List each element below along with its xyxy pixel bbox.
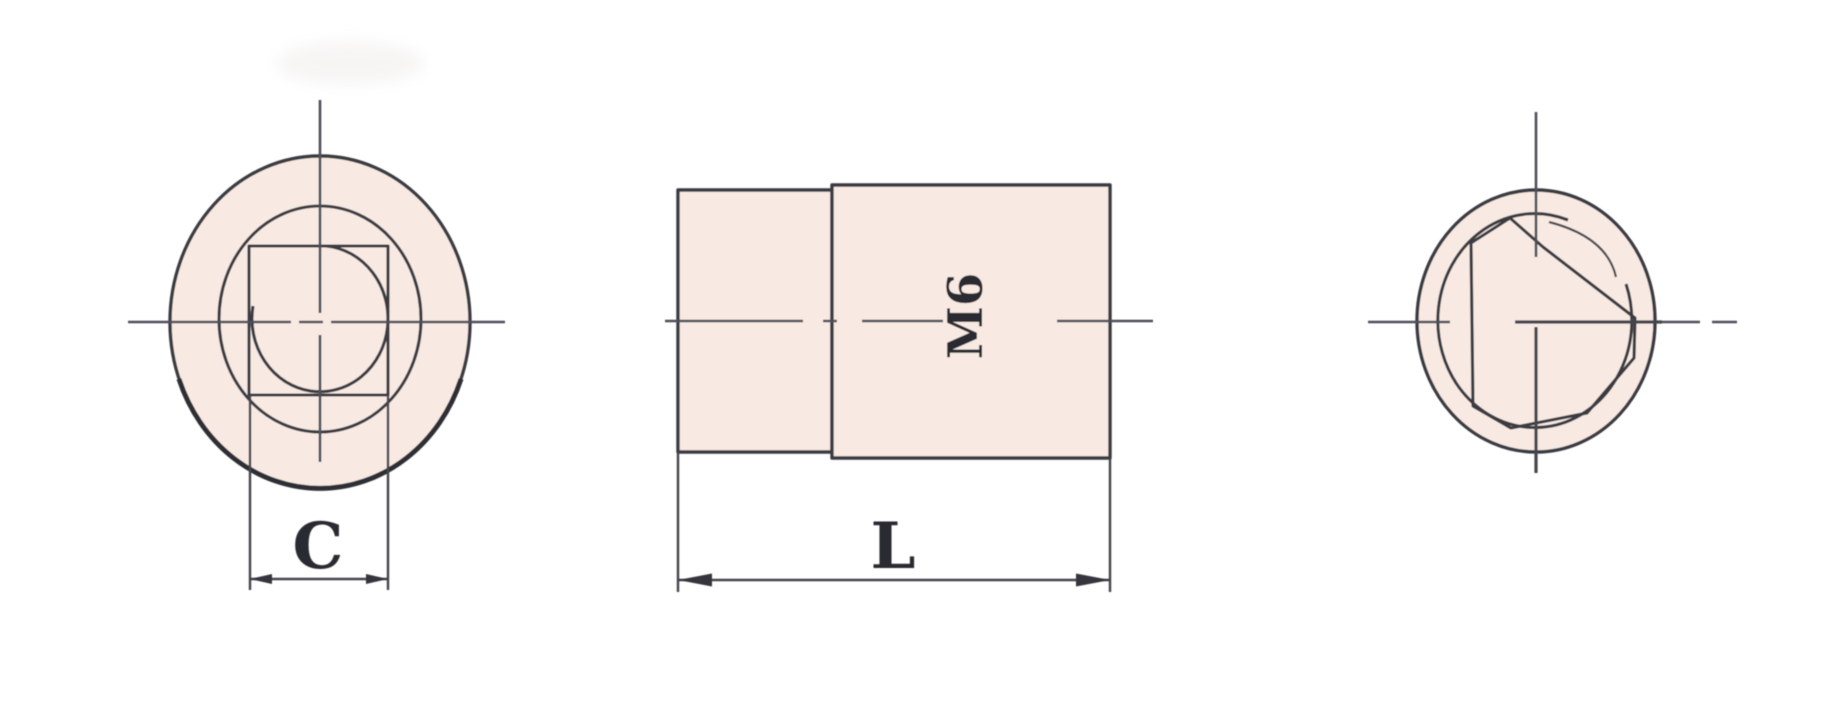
front-view: C (128, 100, 505, 590)
scan-smudge (276, 41, 424, 85)
end-view (1368, 112, 1737, 473)
drawing-page: { "drawing": { "labels": { "width_dim": … (0, 0, 1846, 712)
length-arrow-right-icon (1076, 574, 1110, 587)
side-view: M6 L (665, 185, 1153, 592)
width-arrow-left-icon (250, 574, 272, 584)
width-arrow-right-icon (366, 574, 388, 584)
thread-spec-label: M6 (938, 273, 994, 360)
width-dimension-label: C (293, 509, 344, 584)
length-arrow-left-icon (678, 574, 712, 587)
length-dimension-label: L (871, 509, 916, 584)
drawing-views: C M6 L (128, 100, 1737, 592)
technical-drawing-canvas: C M6 L (0, 0, 1846, 712)
drawing-svg: C M6 L (0, 0, 1846, 712)
